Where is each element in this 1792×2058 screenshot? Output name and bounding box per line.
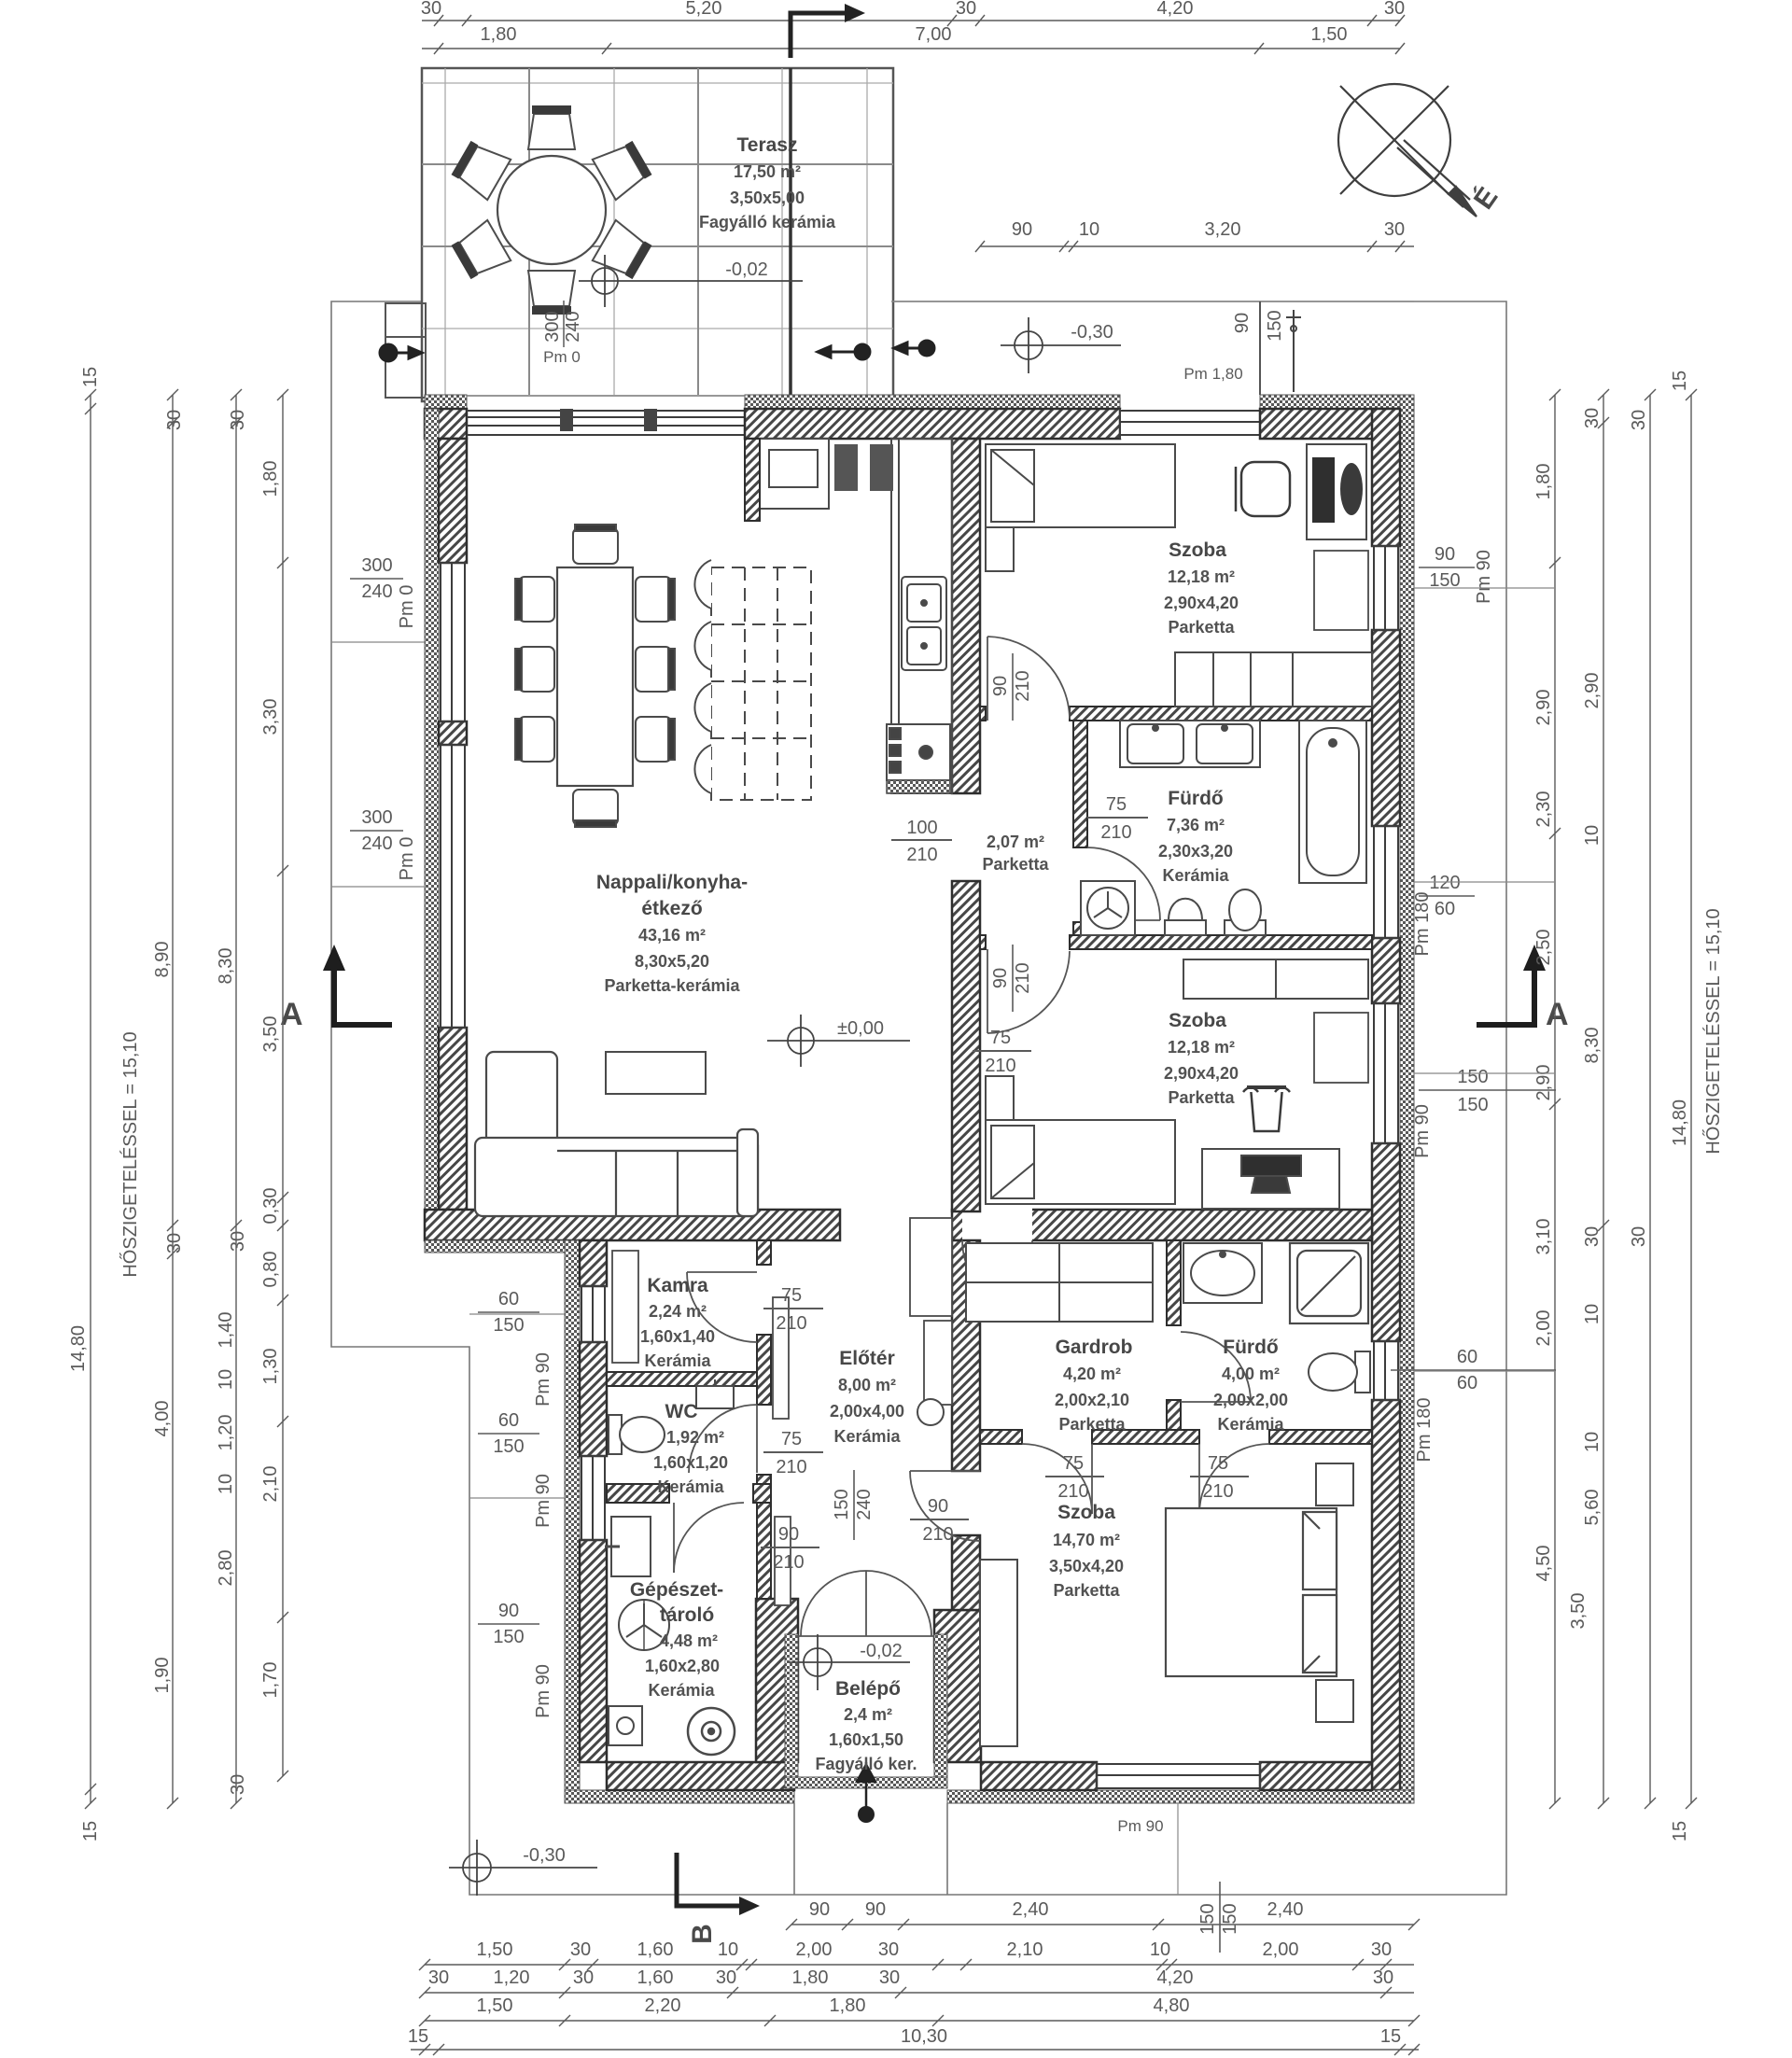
svg-text:Belépő: Belépő [835, 1678, 901, 1700]
svg-text:75: 75 [781, 1285, 802, 1306]
svg-text:1,90: 1,90 [152, 1658, 173, 1694]
svg-text:10: 10 [1079, 219, 1099, 240]
svg-text:150: 150 [1220, 1903, 1240, 1934]
svg-text:90: 90 [809, 1899, 830, 1920]
svg-text:3,30: 3,30 [260, 699, 281, 735]
svg-text:1,30: 1,30 [260, 1349, 281, 1385]
svg-text:30: 30 [164, 1233, 185, 1253]
svg-text:WC: WC [665, 1401, 698, 1422]
svg-text:240: 240 [854, 1489, 875, 1519]
svg-text:210: 210 [773, 1552, 804, 1573]
svg-text:4,50: 4,50 [1533, 1546, 1554, 1582]
svg-text:30: 30 [1629, 1226, 1649, 1247]
svg-text:4,20 m²: 4,20 m² [1063, 1365, 1121, 1383]
svg-text:4,20: 4,20 [1157, 1967, 1194, 1988]
svg-text:10: 10 [1150, 1939, 1170, 1960]
svg-text:30: 30 [228, 1231, 248, 1252]
svg-text:Gardrob: Gardrob [1056, 1337, 1133, 1358]
svg-text:90: 90 [990, 676, 1011, 696]
svg-text:30: 30 [164, 410, 185, 430]
svg-text:90: 90 [498, 1601, 519, 1621]
svg-text:30: 30 [1582, 1226, 1603, 1247]
svg-text:3,20: 3,20 [1205, 219, 1241, 240]
svg-text:7,00: 7,00 [916, 24, 952, 45]
svg-text:2,07 m²: 2,07 m² [987, 833, 1044, 851]
svg-text:Parketta: Parketta [1053, 1581, 1120, 1600]
svg-text:3,50x5,00: 3,50x5,00 [730, 189, 805, 207]
svg-text:1,20: 1,20 [494, 1967, 530, 1988]
svg-text:30: 30 [570, 1939, 591, 1960]
svg-text:75: 75 [1063, 1453, 1084, 1474]
svg-text:90: 90 [778, 1524, 799, 1545]
svg-text:210: 210 [1202, 1481, 1233, 1502]
svg-text:14,80: 14,80 [68, 1325, 89, 1372]
svg-text:30: 30 [573, 1967, 594, 1988]
svg-text:1,80: 1,80 [260, 461, 281, 497]
svg-text:10: 10 [216, 1474, 236, 1494]
svg-text:Kerámia: Kerámia [648, 1681, 715, 1700]
svg-text:HŐSZIGETELÉSSEL = 15,10: HŐSZIGETELÉSSEL = 15,10 [119, 1031, 141, 1277]
svg-text:Pm 1,80: Pm 1,80 [1183, 365, 1242, 383]
svg-text:1,60: 1,60 [637, 1939, 674, 1960]
svg-text:10: 10 [1582, 1304, 1603, 1324]
svg-text:210: 210 [1013, 962, 1033, 993]
svg-text:75: 75 [990, 1028, 1011, 1048]
svg-text:2,80: 2,80 [216, 1550, 236, 1587]
svg-text:2,90x4,20: 2,90x4,20 [1164, 1064, 1239, 1083]
svg-text:Fürdő: Fürdő [1168, 788, 1223, 809]
svg-text:3,50x4,20: 3,50x4,20 [1049, 1557, 1124, 1575]
svg-text:A: A [1546, 997, 1569, 1032]
svg-text:Parketta-kerámia: Parketta-kerámia [604, 976, 740, 995]
svg-text:Pm 90: Pm 90 [533, 1664, 553, 1718]
svg-text:Fagyálló ker.: Fagyálló ker. [815, 1755, 917, 1773]
svg-text:8,90: 8,90 [152, 942, 173, 978]
svg-text:30: 30 [956, 0, 976, 19]
svg-text:3,50: 3,50 [260, 1016, 281, 1053]
svg-text:Pm 180: Pm 180 [1414, 1398, 1435, 1463]
svg-text:Kerámia: Kerámia [644, 1351, 711, 1370]
svg-text:2,90: 2,90 [1582, 673, 1603, 709]
svg-text:210: 210 [776, 1457, 806, 1477]
svg-text:Parketta: Parketta [1168, 1088, 1235, 1107]
svg-text:1,50: 1,50 [477, 1995, 513, 2016]
svg-text:2,30x3,20: 2,30x3,20 [1158, 842, 1233, 861]
svg-text:Parketta: Parketta [1058, 1415, 1126, 1434]
svg-text:8,30: 8,30 [1582, 1028, 1603, 1064]
svg-text:Kerámia: Kerámia [833, 1427, 901, 1446]
svg-text:8,30x5,20: 8,30x5,20 [635, 952, 709, 971]
svg-text:Pm 90: Pm 90 [533, 1352, 553, 1407]
svg-text:30: 30 [421, 0, 441, 19]
svg-text:210: 210 [1013, 670, 1033, 701]
svg-text:4,00: 4,00 [152, 1401, 173, 1437]
svg-text:30: 30 [1371, 1939, 1392, 1960]
svg-text:Pm 0: Pm 0 [543, 348, 581, 366]
svg-text:240: 240 [361, 581, 392, 602]
svg-text:15: 15 [408, 2026, 428, 2047]
svg-text:0,30: 0,30 [260, 1188, 281, 1225]
svg-text:12,18 m²: 12,18 m² [1168, 567, 1235, 586]
svg-text:Pm 90: Pm 90 [1474, 550, 1494, 604]
svg-text:Kamra: Kamra [647, 1275, 708, 1296]
svg-text:2,00: 2,00 [796, 1939, 833, 1960]
svg-text:Pm 90: Pm 90 [533, 1474, 553, 1528]
svg-text:-0,30: -0,30 [1071, 322, 1113, 343]
svg-text:60: 60 [1457, 1373, 1477, 1393]
svg-text:300: 300 [361, 555, 392, 576]
svg-text:30: 30 [1582, 408, 1603, 428]
svg-text:Kerámia: Kerámia [1217, 1415, 1284, 1434]
svg-text:30: 30 [716, 1967, 736, 1988]
svg-text:2,00x2,10: 2,00x2,10 [1055, 1391, 1129, 1409]
svg-text:15: 15 [1380, 2026, 1401, 2047]
svg-text:Parketta: Parketta [1168, 618, 1235, 637]
svg-text:Pm 90: Pm 90 [1412, 1104, 1433, 1158]
svg-text:90: 90 [990, 968, 1011, 988]
svg-text:2,10: 2,10 [1007, 1939, 1043, 1960]
svg-text:30: 30 [1373, 1967, 1393, 1988]
svg-text:Terasz: Terasz [737, 134, 798, 156]
svg-text:1,20: 1,20 [216, 1415, 236, 1451]
svg-text:2,20: 2,20 [645, 1995, 681, 2016]
svg-text:210: 210 [985, 1056, 1015, 1076]
svg-text:90: 90 [928, 1496, 948, 1517]
svg-text:2,90: 2,90 [1533, 1065, 1554, 1101]
svg-text:15: 15 [80, 1821, 101, 1841]
svg-text:Pm 0: Pm 0 [397, 837, 417, 881]
svg-text:2,30: 2,30 [1533, 791, 1554, 828]
svg-text:1,70: 1,70 [260, 1662, 281, 1699]
svg-text:60: 60 [498, 1289, 519, 1309]
svg-text:300: 300 [361, 807, 392, 828]
svg-text:30: 30 [878, 1939, 899, 1960]
svg-text:1,60x2,80: 1,60x2,80 [645, 1657, 720, 1675]
svg-text:1,80: 1,80 [481, 24, 517, 45]
svg-text:2,90x4,20: 2,90x4,20 [1164, 594, 1239, 612]
svg-text:60: 60 [1457, 1347, 1477, 1367]
svg-text:1,60x1,40: 1,60x1,40 [640, 1327, 715, 1346]
svg-text:10: 10 [718, 1939, 738, 1960]
svg-text:2,00x2,00: 2,00x2,00 [1213, 1391, 1288, 1409]
svg-text:Szoba: Szoba [1169, 539, 1226, 561]
svg-text:4,48 m²: 4,48 m² [660, 1631, 718, 1650]
svg-text:240: 240 [563, 311, 583, 342]
svg-text:30: 30 [228, 1774, 248, 1795]
svg-text:1,80: 1,80 [1533, 464, 1554, 500]
svg-text:1,50: 1,50 [477, 1939, 513, 1960]
svg-text:1,50: 1,50 [1311, 24, 1348, 45]
svg-text:210: 210 [1100, 822, 1131, 843]
svg-text:-0,30: -0,30 [523, 1845, 566, 1866]
svg-text:150: 150 [493, 1627, 524, 1647]
svg-text:Gépészet-: Gépészet- [630, 1579, 723, 1601]
svg-text:300: 300 [542, 311, 563, 342]
svg-text:30: 30 [1384, 219, 1405, 240]
svg-text:-0,02: -0,02 [860, 1641, 903, 1661]
svg-text:10: 10 [216, 1369, 236, 1390]
svg-text:1,60: 1,60 [637, 1967, 674, 1988]
svg-text:150: 150 [1457, 1067, 1488, 1087]
svg-text:150: 150 [1197, 1903, 1218, 1934]
svg-text:75: 75 [1106, 794, 1127, 815]
svg-text:15: 15 [1670, 1821, 1690, 1841]
svg-text:15: 15 [1670, 371, 1690, 391]
svg-text:Pm 90: Pm 90 [1117, 1817, 1163, 1835]
svg-text:30: 30 [428, 1967, 449, 1988]
svg-text:HŐSZIGETELÉSSEL = 15,10: HŐSZIGETELÉSSEL = 15,10 [1702, 908, 1724, 1154]
svg-text:1,60x1,20: 1,60x1,20 [653, 1453, 728, 1472]
svg-text:43,16 m²: 43,16 m² [638, 926, 706, 945]
svg-text:14,70 m²: 14,70 m² [1053, 1531, 1120, 1549]
svg-text:10: 10 [1582, 825, 1603, 846]
svg-text:2,24 m²: 2,24 m² [649, 1302, 707, 1321]
svg-text:7,36 m²: 7,36 m² [1167, 816, 1225, 834]
svg-text:Nappali/konyha-: Nappali/konyha- [596, 872, 748, 893]
svg-text:2,00x4,00: 2,00x4,00 [830, 1402, 904, 1421]
svg-text:90: 90 [1012, 219, 1032, 240]
svg-text:30: 30 [879, 1967, 900, 1988]
svg-text:14,80: 14,80 [1670, 1099, 1690, 1146]
svg-text:12,18 m²: 12,18 m² [1168, 1038, 1235, 1057]
svg-text:10,30: 10,30 [901, 2026, 947, 2047]
svg-text:8,00 m²: 8,00 m² [838, 1376, 896, 1394]
svg-text:30: 30 [1629, 410, 1649, 430]
svg-text:15: 15 [80, 367, 101, 387]
svg-text:1,92 m²: 1,92 m² [666, 1428, 724, 1447]
svg-text:2,40: 2,40 [1267, 1899, 1304, 1920]
svg-text:Pm 0: Pm 0 [397, 585, 417, 629]
svg-text:150: 150 [493, 1436, 524, 1457]
svg-text:2,4 m²: 2,4 m² [844, 1705, 892, 1724]
svg-text:150: 150 [1457, 1095, 1488, 1115]
svg-text:17,50 m²: 17,50 m² [734, 162, 801, 181]
svg-text:0,80: 0,80 [260, 1252, 281, 1288]
svg-text:2,40: 2,40 [1013, 1899, 1049, 1920]
svg-text:100: 100 [906, 818, 937, 838]
svg-text:4,80: 4,80 [1154, 1995, 1190, 2016]
svg-text:2,10: 2,10 [260, 1466, 281, 1503]
svg-text:1,60x1,50: 1,60x1,50 [829, 1730, 903, 1749]
svg-text:75: 75 [1208, 1453, 1228, 1474]
svg-text:2,00: 2,00 [1263, 1939, 1299, 1960]
svg-text:2,50: 2,50 [1533, 930, 1554, 966]
svg-text:90: 90 [865, 1899, 886, 1920]
svg-text:60: 60 [498, 1410, 519, 1431]
svg-text:étkező: étkező [641, 898, 702, 919]
svg-text:150: 150 [493, 1315, 524, 1336]
svg-text:Parketta: Parketta [982, 855, 1049, 874]
svg-text:3,10: 3,10 [1533, 1219, 1554, 1255]
svg-text:210: 210 [906, 845, 937, 865]
svg-text:90: 90 [1232, 313, 1253, 333]
svg-text:5,20: 5,20 [686, 0, 722, 19]
svg-text:30: 30 [228, 410, 248, 430]
svg-text:210: 210 [1057, 1481, 1088, 1502]
svg-text:Szoba: Szoba [1057, 1502, 1115, 1523]
svg-text:210: 210 [776, 1313, 806, 1334]
svg-text:Fürdő: Fürdő [1223, 1337, 1278, 1358]
svg-text:120: 120 [1429, 873, 1460, 893]
svg-text:Kerámia: Kerámia [657, 1477, 724, 1496]
svg-text:2,90: 2,90 [1533, 690, 1554, 726]
svg-text:1,80: 1,80 [830, 1995, 866, 2016]
svg-text:210: 210 [922, 1524, 953, 1545]
svg-text:Pm 180: Pm 180 [1412, 892, 1433, 957]
svg-text:75: 75 [781, 1429, 802, 1449]
svg-text:5,60: 5,60 [1582, 1490, 1603, 1526]
svg-text:10: 10 [1582, 1432, 1603, 1452]
svg-text:90: 90 [1435, 544, 1455, 565]
svg-text:4,20: 4,20 [1157, 0, 1194, 19]
svg-text:Szoba: Szoba [1169, 1010, 1226, 1031]
svg-text:-0,02: -0,02 [725, 259, 768, 280]
svg-text:60: 60 [1435, 899, 1455, 919]
svg-text:Fagyálló kerámia: Fagyálló kerámia [699, 213, 836, 231]
svg-text:2,00: 2,00 [1533, 1310, 1554, 1347]
svg-text:3,50: 3,50 [1568, 1593, 1589, 1630]
svg-text:150: 150 [832, 1489, 852, 1519]
svg-text:150: 150 [1265, 310, 1285, 341]
svg-text:240: 240 [361, 833, 392, 854]
svg-text:1,40: 1,40 [216, 1312, 236, 1349]
svg-text:tároló: tároló [660, 1604, 714, 1626]
svg-text:B: B [687, 1924, 718, 1944]
svg-text:Előtér: Előtér [839, 1348, 895, 1369]
svg-text:1,80: 1,80 [792, 1967, 829, 1988]
svg-text:30: 30 [1384, 0, 1405, 19]
svg-text:Kerámia: Kerámia [1162, 866, 1229, 885]
svg-text:4,00 m²: 4,00 m² [1222, 1365, 1280, 1383]
svg-text:8,30: 8,30 [216, 948, 236, 985]
svg-text:±0,00: ±0,00 [837, 1018, 884, 1039]
